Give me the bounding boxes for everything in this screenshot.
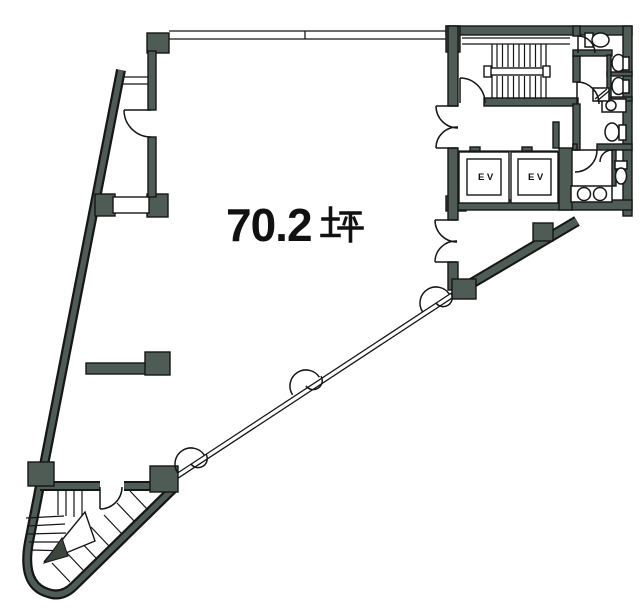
outer-wall-diagonal-southeast [462, 221, 577, 289]
tsubo-unit-glyph [322, 208, 362, 241]
door-swing-icon [435, 220, 457, 262]
floor-plan-drawing: EV EV [0, 0, 640, 610]
door-swing-icon [290, 370, 322, 395]
door-swing-icon [575, 150, 597, 172]
column-top-left [147, 33, 169, 53]
corridor-wall-stub [553, 122, 559, 148]
elevator-kitchen-party-wall [559, 148, 572, 210]
door-swing-icon [436, 106, 458, 148]
stub1-wall [113, 197, 149, 213]
main-staircase [462, 38, 570, 99]
elevator-2-label: EV [528, 172, 546, 183]
area-value: 70.2 [226, 199, 312, 251]
door-swing-icon [124, 110, 151, 137]
winder-pier-left [28, 462, 54, 486]
stub2-pier [145, 352, 170, 375]
diagonal-pier-west [452, 279, 476, 299]
core-left-wall-middle [448, 148, 458, 220]
stair-room-south-wall [484, 98, 578, 106]
door-swings [100, 36, 612, 509]
door-swing-icon [100, 487, 122, 509]
entry-wall-upper [148, 51, 156, 110]
sink-icon [606, 101, 616, 111]
toilet-icon [605, 123, 619, 141]
stair-center-rail [489, 68, 545, 75]
urinal-icon [616, 168, 627, 184]
stub1-pier-left [95, 194, 115, 216]
window-wall-diagonal [170, 290, 459, 482]
door-swing-icon [600, 150, 612, 162]
elevator-1: EV [459, 152, 509, 203]
kitchen-north-wall-a [573, 144, 577, 150]
toilet-icon [592, 33, 609, 47]
window-wall-top [122, 31, 446, 84]
diagonal-pier-east [533, 223, 553, 241]
door-swing-icon [460, 78, 485, 103]
core-right-wall [623, 26, 632, 216]
floor-plan-canvas: EV EV [0, 0, 640, 610]
restroom-divider-1 [573, 50, 612, 56]
area-label: 70.2 [226, 199, 362, 251]
elevator-1-label: EV [478, 172, 496, 183]
winder-pier-right [150, 466, 178, 492]
elevator-2: EV [511, 152, 558, 203]
restroom-west-wall-c [573, 104, 580, 150]
restroom-west-wall-a [573, 26, 580, 36]
entry-wall-lower [148, 137, 156, 197]
sink-icon [594, 188, 607, 201]
restroom-west-wall-b [573, 56, 580, 82]
stub2-wall [86, 363, 148, 374]
sink-icon [578, 188, 591, 201]
core-left-wall-upper [448, 26, 458, 106]
kitchen-north-wall-b [597, 144, 632, 150]
